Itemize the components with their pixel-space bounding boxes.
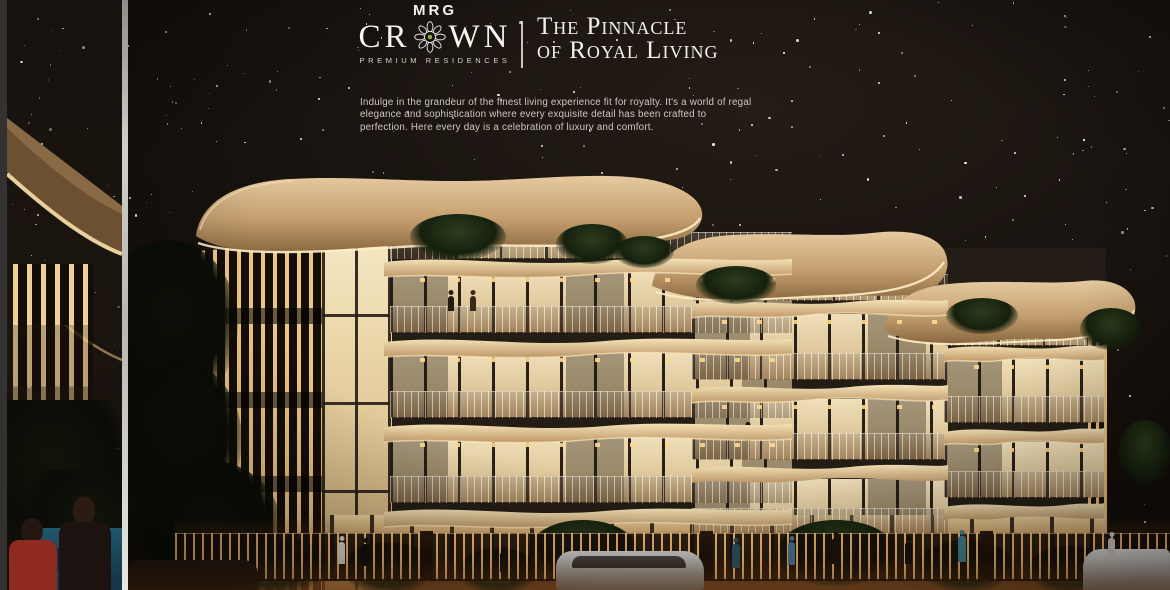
crown-ornament-icon — [413, 20, 447, 54]
hero-banner: MRG CR WN — [0, 0, 1170, 590]
ground-haze — [128, 558, 1170, 590]
person-balcony — [470, 296, 476, 311]
slide-divider — [122, 0, 128, 590]
downlight-strip — [944, 448, 1104, 452]
tagline-line1: The Pinnacle — [537, 15, 767, 39]
downlight-strip — [692, 405, 948, 409]
brand-wordmark: CR WN — [356, 20, 514, 54]
rooftop-planter — [946, 298, 1018, 334]
rooftop-planter — [410, 214, 506, 260]
main-render: MRG CR WN — [128, 0, 1170, 590]
tagline: The Pinnacle of Royal Living — [537, 15, 767, 63]
brand-subtitle: PREMIUM RESIDENCES — [356, 56, 514, 65]
preview-person-red — [9, 540, 57, 590]
rooftop-planter — [614, 236, 674, 268]
rooftop-planter — [696, 266, 776, 304]
balcony-railing — [390, 476, 792, 503]
downlight-strip — [692, 320, 948, 324]
downlight-strip — [390, 443, 792, 447]
brand-name: MRG — [356, 2, 514, 19]
downlight-strip — [390, 358, 792, 362]
description-text: Indulge in the grandeur of the finest li… — [360, 97, 752, 135]
balcony-railing — [944, 396, 1104, 423]
wordmark-left: CR — [358, 20, 410, 54]
wordmark-right: WN — [449, 20, 512, 54]
person-balcony — [448, 296, 454, 311]
left-edge-strip — [0, 0, 7, 590]
preview-person-dark — [59, 522, 111, 590]
downlight-strip — [944, 365, 1104, 369]
brand-logo: MRG CR WN — [356, 2, 514, 65]
headline-separator — [521, 21, 523, 68]
carousel-previous-slide[interactable] — [7, 0, 122, 590]
person-balcony — [745, 428, 750, 441]
rooftop-planter — [1080, 308, 1142, 350]
tagline-line2: of Royal Living — [537, 39, 767, 63]
balcony-railing — [944, 471, 1104, 498]
right-edge-plant — [1118, 420, 1170, 484]
